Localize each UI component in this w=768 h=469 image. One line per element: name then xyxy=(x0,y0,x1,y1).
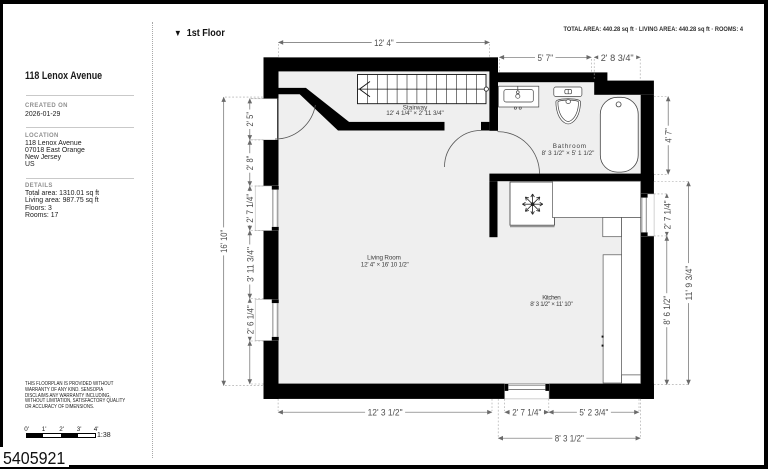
svg-text:12' 4": 12' 4" xyxy=(374,38,394,49)
svg-text:12' 4 1/4" × 2' 11 3/4": 12' 4 1/4" × 2' 11 3/4" xyxy=(386,110,444,117)
svg-text:5' 2 3/4": 5' 2 3/4" xyxy=(579,408,608,419)
svg-text:2' 8 3/4": 2' 8 3/4" xyxy=(601,53,634,64)
svg-text:3' 11 3/4": 3' 11 3/4" xyxy=(245,247,256,282)
svg-text:12' 4" × 16' 10 1/2": 12' 4" × 16' 10 1/2" xyxy=(361,262,409,269)
svg-text:2' 6 1/4": 2' 6 1/4" xyxy=(245,305,256,334)
svg-text:8' 3 1/2": 8' 3 1/2" xyxy=(555,434,584,445)
svg-text:2' 7 1/4": 2' 7 1/4" xyxy=(512,408,541,419)
svg-text:12' 3 1/2": 12' 3 1/2" xyxy=(368,408,403,419)
svg-text:16' 10": 16' 10" xyxy=(219,230,230,253)
svg-text:Bathroom: Bathroom xyxy=(553,143,586,150)
svg-text:8' 6 1/2": 8' 6 1/2" xyxy=(662,296,673,325)
svg-text:2' 8": 2' 8" xyxy=(245,156,256,171)
svg-text:11' 9 3/4": 11' 9 3/4" xyxy=(684,266,695,301)
svg-text:5' 7": 5' 7" xyxy=(538,53,554,64)
svg-text:8' 3 1/2" × 5' 1 1/2": 8' 3 1/2" × 5' 1 1/2" xyxy=(542,150,595,157)
svg-text:Living Room: Living Room xyxy=(367,254,401,261)
svg-text:4' 7": 4' 7" xyxy=(664,128,675,143)
svg-text:2' 5": 2' 5" xyxy=(245,112,256,127)
svg-text:8' 3 1/2" × 11' 10": 8' 3 1/2" × 11' 10" xyxy=(530,301,573,308)
svg-text:2' 7 1/4": 2' 7 1/4" xyxy=(245,194,256,223)
svg-text:2' 7 1/4": 2' 7 1/4" xyxy=(662,200,673,229)
